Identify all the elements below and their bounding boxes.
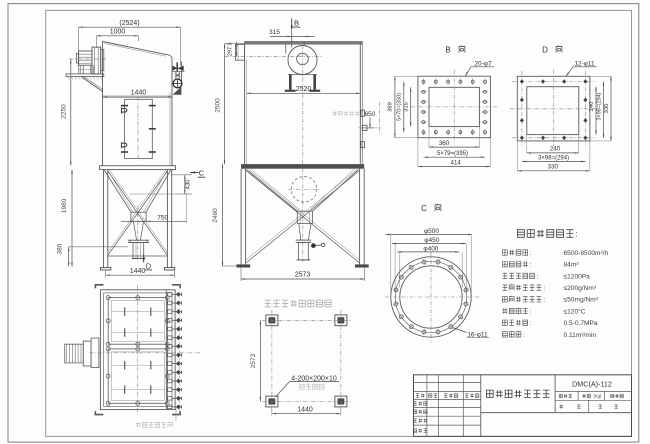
svg-text::: : — [543, 285, 545, 292]
svg-text:360: 360 — [439, 140, 450, 147]
svg-text:≤120°C: ≤120°C — [564, 307, 586, 315]
svg-text::: : — [530, 262, 532, 269]
svg-text:5×70=(350): 5×70=(350) — [396, 93, 402, 121]
svg-text:≤1200Pa: ≤1200Pa — [564, 273, 591, 280]
svg-text:C: C — [199, 169, 205, 178]
svg-text:DMC(A)-112: DMC(A)-112 — [572, 380, 612, 389]
svg-text:0.11m³/min: 0.11m³/min — [564, 332, 597, 339]
svg-text:(2524): (2524) — [119, 20, 139, 27]
svg-text:≤200g/Nm³: ≤200g/Nm³ — [564, 285, 597, 292]
svg-text:2460: 2460 — [212, 208, 219, 223]
svg-text:3×98=(294): 3×98=(294) — [596, 92, 602, 120]
svg-text:650: 650 — [365, 111, 376, 118]
svg-text:(Kg): (Kg) — [594, 394, 603, 399]
svg-text:330: 330 — [604, 104, 610, 114]
svg-text::: : — [530, 308, 532, 315]
svg-text:2500: 2500 — [214, 98, 221, 113]
svg-text:B: B — [445, 46, 450, 55]
svg-text:≤50mg/Nm³: ≤50mg/Nm³ — [564, 297, 599, 304]
svg-text:6500-8500m³/h: 6500-8500m³/h — [564, 250, 609, 257]
svg-text:D: D — [146, 261, 152, 270]
svg-text:297.5: 297.5 — [228, 42, 234, 56]
svg-text:1000: 1000 — [110, 28, 126, 35]
svg-text:φ450: φ450 — [424, 237, 439, 244]
svg-text:0.5-0.7MPa: 0.5-0.7MPa — [564, 320, 598, 327]
svg-text:3×98=(294): 3×98=(294) — [538, 155, 569, 161]
svg-text:330: 330 — [548, 164, 559, 171]
svg-text:2573: 2573 — [295, 272, 311, 279]
svg-text:1440: 1440 — [130, 268, 146, 275]
svg-text:369: 369 — [387, 102, 393, 112]
svg-text::: : — [530, 250, 532, 257]
svg-text:414: 414 — [451, 160, 462, 167]
svg-text:12-φ11: 12-φ11 — [574, 61, 595, 68]
svg-text::: : — [543, 297, 545, 304]
svg-text:84m²: 84m² — [564, 262, 580, 269]
svg-text:20-φ7: 20-φ7 — [474, 61, 492, 68]
svg-text:φ500: φ500 — [424, 228, 439, 235]
svg-text:C: C — [421, 204, 427, 213]
svg-text:750: 750 — [157, 215, 168, 222]
svg-text:1440: 1440 — [297, 407, 313, 414]
svg-text::: : — [530, 320, 532, 327]
svg-text:B: B — [294, 19, 299, 28]
svg-text:φ400: φ400 — [423, 246, 438, 253]
svg-text:D: D — [542, 46, 548, 55]
svg-text::: : — [575, 230, 577, 239]
svg-text:5×79=(395): 5×79=(395) — [437, 151, 468, 157]
svg-text:2573: 2573 — [250, 353, 257, 368]
svg-text:240: 240 — [589, 102, 595, 112]
svg-text:240: 240 — [550, 146, 561, 153]
svg-text:315: 315 — [269, 29, 280, 36]
svg-text::: : — [523, 332, 525, 339]
svg-text:315: 315 — [403, 102, 409, 112]
svg-text:430: 430 — [186, 179, 192, 190]
svg-text::: : — [537, 273, 539, 280]
svg-text:2520: 2520 — [296, 86, 312, 93]
svg-text:2250: 2250 — [61, 104, 68, 119]
svg-text:1440: 1440 — [131, 90, 147, 97]
svg-text:1980: 1980 — [61, 198, 68, 213]
svg-text:380: 380 — [57, 243, 64, 254]
